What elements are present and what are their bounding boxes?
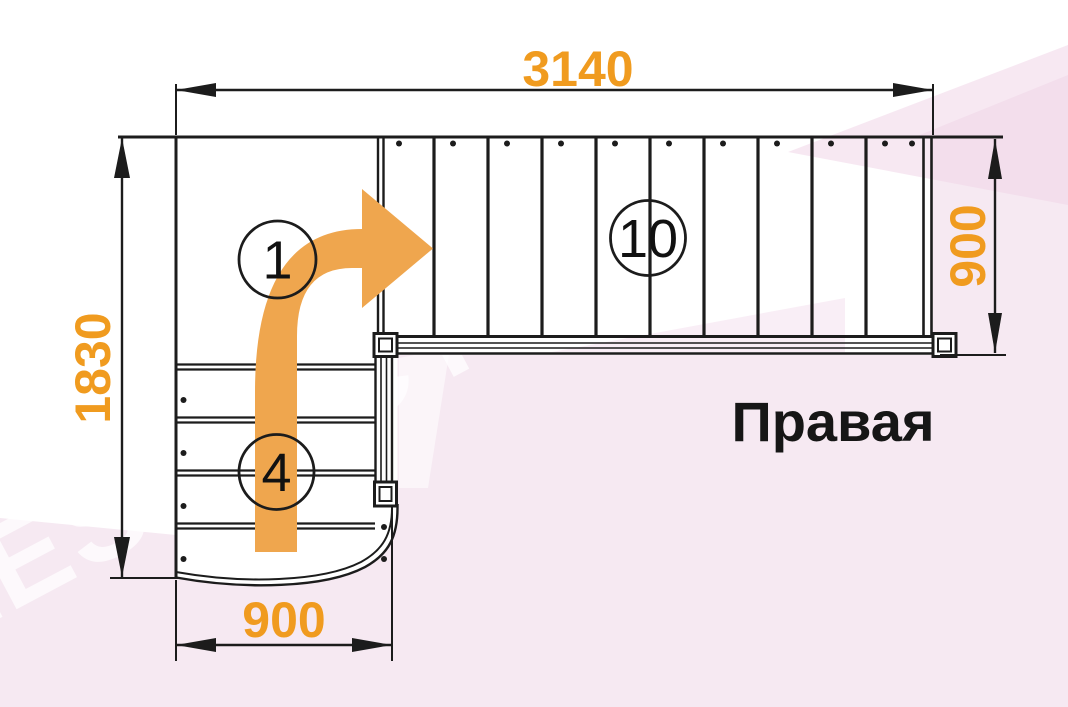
- dim-arrow-left: [176, 83, 216, 97]
- start-step-number: 1: [262, 231, 292, 291]
- right-newel-post: [933, 334, 956, 357]
- dim-top-value: 3140: [522, 41, 633, 97]
- stair-plan-diagram: LESTNICY-PROSTO.RU: [0, 0, 1068, 707]
- dim-right-value: 900: [940, 204, 996, 287]
- bottom-newel-post: [375, 482, 397, 506]
- lower-steps-number: 4: [261, 443, 291, 503]
- upper-steps-number: 10: [618, 209, 678, 269]
- upper-steps-marker: 10: [611, 201, 686, 276]
- stair-plan-page: LESTNICY-PROSTO.RU: [0, 0, 1068, 707]
- dim-left-value: 1830: [65, 312, 121, 423]
- dim-bottom-value: 900: [242, 592, 325, 648]
- dim-arrow-up: [114, 138, 130, 178]
- page-title: Правая: [731, 390, 934, 453]
- corner-newel-post: [374, 334, 397, 357]
